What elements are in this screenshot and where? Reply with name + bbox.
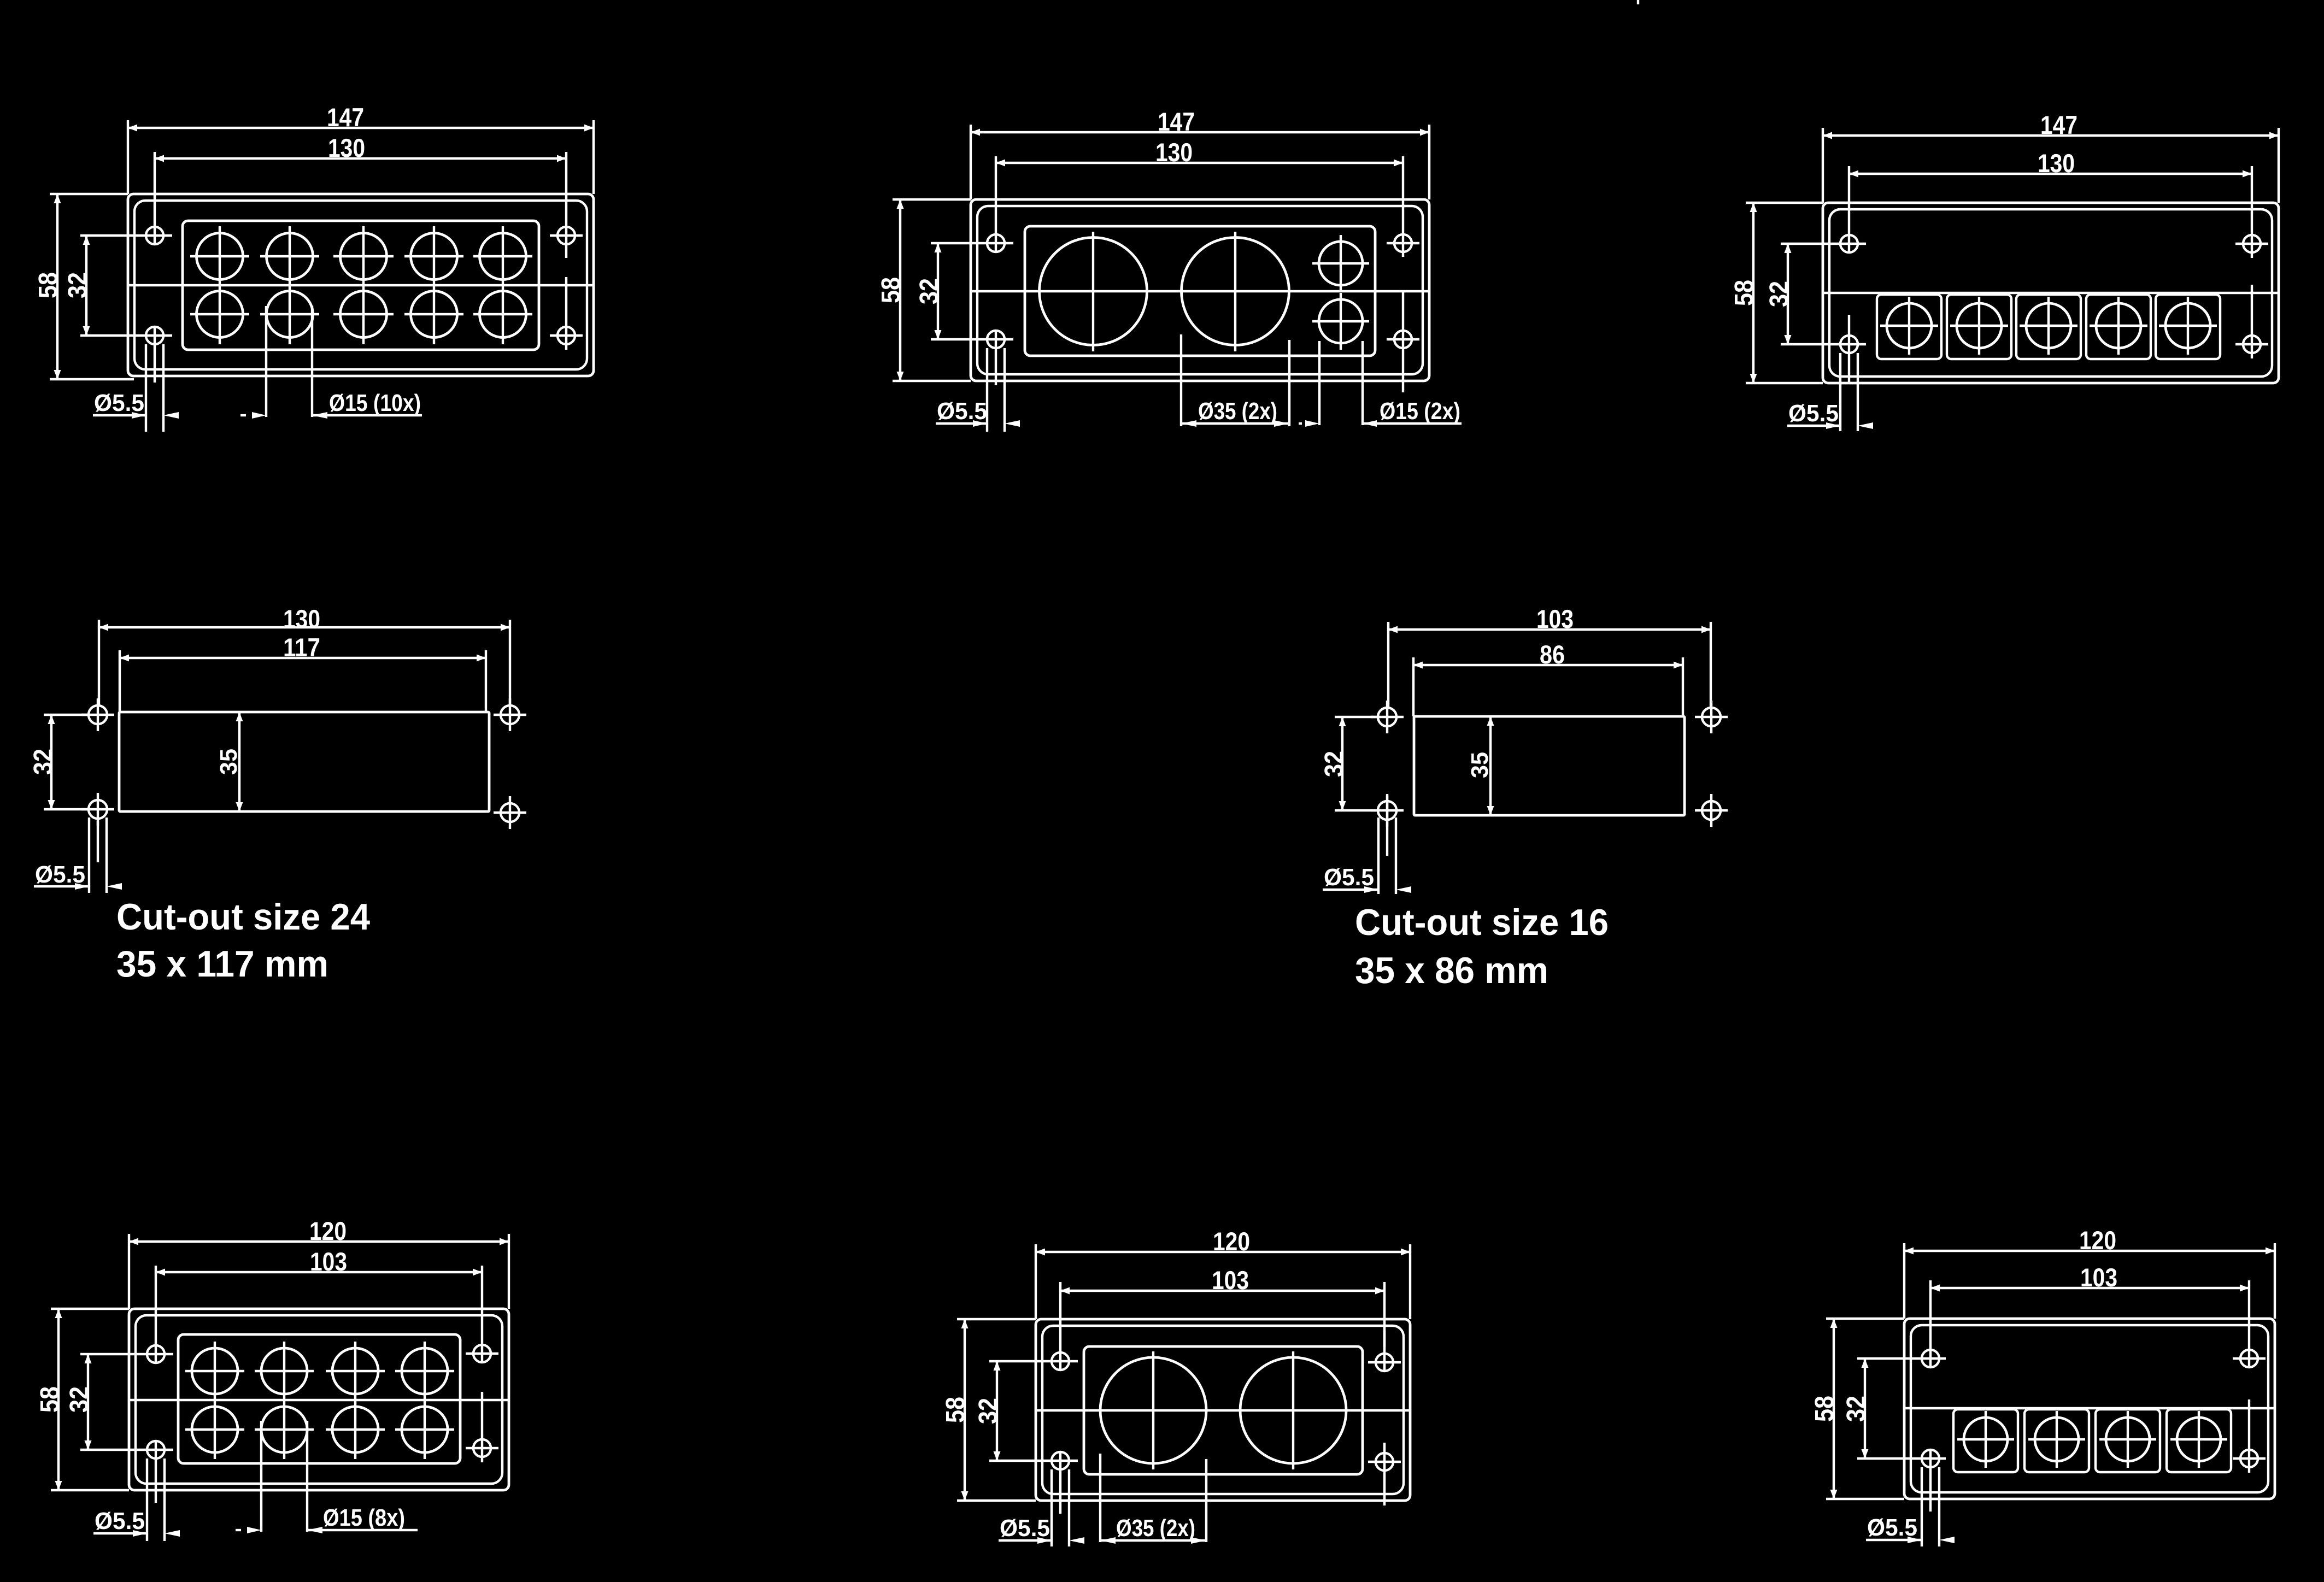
svg-text:35: 35 — [1466, 752, 1493, 778]
svg-text:Ø35 (2x): Ø35 (2x) — [1198, 398, 1277, 425]
svg-text:147: 147 — [327, 103, 364, 132]
svg-text:Ø5.5: Ø5.5 — [35, 861, 85, 888]
svg-text:Ø5.5: Ø5.5 — [937, 398, 987, 425]
svg-text:86: 86 — [1540, 640, 1565, 669]
svg-text:35 x 86 mm: 35 x 86 mm — [1355, 950, 1548, 991]
svg-text:Ø15 (10x): Ø15 (10x) — [329, 390, 421, 416]
svg-text:147: 147 — [1158, 107, 1195, 136]
svg-text:117: 117 — [283, 633, 320, 662]
svg-text:Cut-out size 16: Cut-out size 16 — [1355, 902, 1609, 943]
svg-text:130: 130 — [283, 604, 320, 633]
svg-text:120: 120 — [2079, 1226, 2116, 1255]
svg-text:Ø5.5: Ø5.5 — [1788, 400, 1839, 427]
svg-text:103: 103 — [310, 1247, 347, 1276]
svg-text:Ø5.5: Ø5.5 — [1000, 1515, 1050, 1542]
svg-text:Ø15 (8x): Ø15 (8x) — [323, 1504, 405, 1531]
svg-text:58: 58 — [36, 1386, 64, 1413]
svg-text:32: 32 — [974, 1398, 1003, 1424]
svg-text:103: 103 — [1212, 1266, 1249, 1295]
svg-text:32: 32 — [1765, 281, 1794, 307]
svg-text:32: 32 — [29, 749, 58, 775]
svg-text:58: 58 — [941, 1397, 970, 1423]
svg-text:103: 103 — [1536, 604, 1574, 633]
svg-text:103: 103 — [2080, 1263, 2117, 1292]
svg-text:120: 120 — [1213, 1227, 1250, 1256]
svg-text:Ø5.5: Ø5.5 — [95, 1508, 145, 1534]
svg-text:120: 120 — [309, 1216, 347, 1245]
svg-text:35 x 117 mm: 35 x 117 mm — [116, 943, 328, 985]
svg-text:Cut-out size 24: Cut-out size 24 — [116, 896, 370, 938]
svg-text:32: 32 — [63, 272, 92, 298]
svg-text:Ø5.5: Ø5.5 — [1867, 1514, 1917, 1541]
svg-text:130: 130 — [1155, 138, 1193, 167]
svg-text:130: 130 — [2038, 149, 2075, 178]
svg-text:32: 32 — [1320, 751, 1349, 777]
svg-text:58: 58 — [1810, 1396, 1839, 1422]
svg-text:130: 130 — [328, 133, 365, 162]
svg-text:Ø35 (2x): Ø35 (2x) — [1116, 1515, 1195, 1542]
svg-text:58: 58 — [1730, 280, 1759, 306]
svg-text:Ø5.5: Ø5.5 — [94, 390, 144, 416]
svg-text:35: 35 — [215, 749, 242, 775]
svg-text:58: 58 — [877, 277, 906, 303]
svg-text:Ø5.5: Ø5.5 — [1324, 864, 1374, 891]
svg-text:Ø15 (2x): Ø15 (2x) — [1380, 398, 1460, 425]
svg-text:32: 32 — [915, 278, 944, 304]
svg-text:32: 32 — [65, 1386, 94, 1413]
svg-text:147: 147 — [2040, 110, 2077, 139]
svg-text:32: 32 — [1842, 1396, 1871, 1422]
svg-text:58: 58 — [34, 272, 63, 298]
